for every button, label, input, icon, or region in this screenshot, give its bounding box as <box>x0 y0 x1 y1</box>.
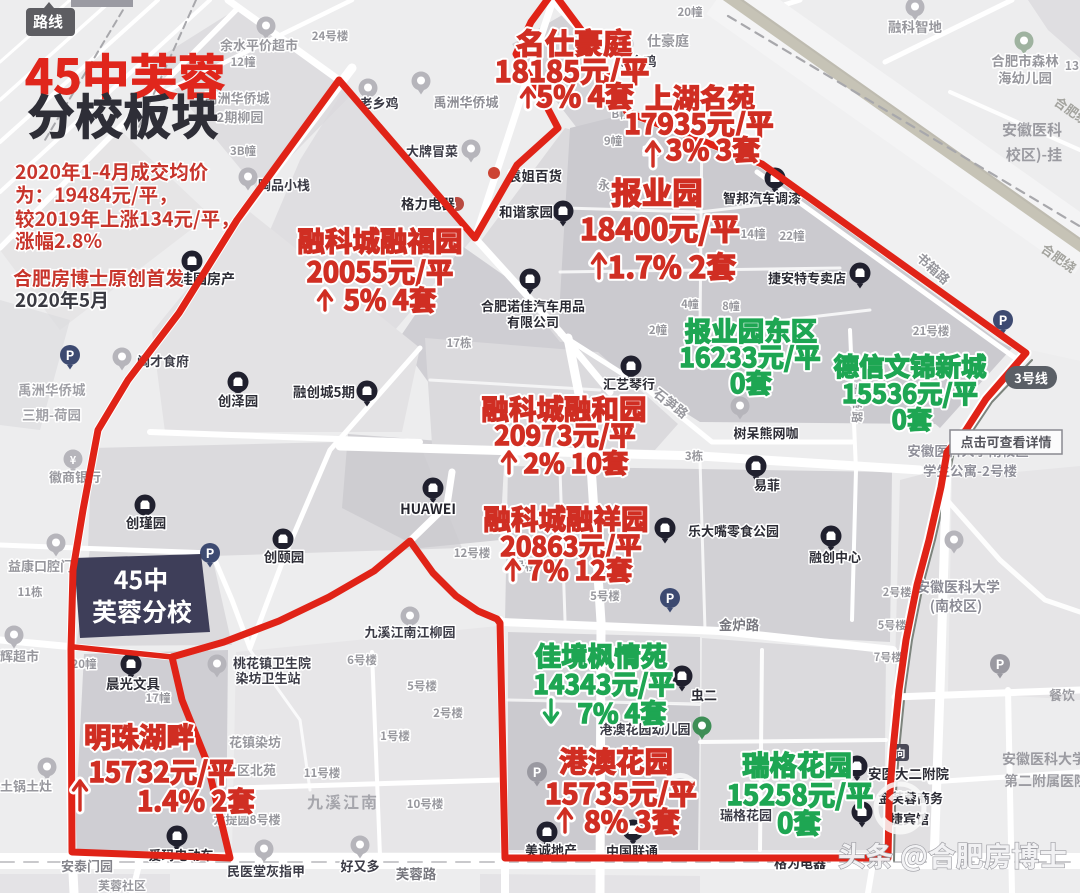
svg-text:染坊卫生站: 染坊卫生站 <box>235 668 300 687</box>
svg-text:虫二: 虫二 <box>691 685 717 704</box>
svg-text:1号楼: 1号楼 <box>380 728 410 744</box>
svg-text:2号楼: 2号楼 <box>433 705 463 721</box>
svg-text:仕豪庭: 仕豪庭 <box>647 31 689 51</box>
svg-text:花镇染坊: 花镇染坊 <box>229 732 281 751</box>
svg-text:头条 @合肥房博士: 头条 @合肥房博士 <box>838 834 1067 874</box>
svg-text:0套: 0套 <box>730 362 772 401</box>
svg-text:6号楼: 6号楼 <box>347 652 377 668</box>
svg-text:2% 10套: 2% 10套 <box>524 442 629 481</box>
svg-text:禹洲华侨城: 禹洲华侨城 <box>433 92 498 111</box>
svg-text:2期柳园: 2期柳园 <box>217 107 264 126</box>
svg-text:P: P <box>206 543 215 562</box>
svg-text:禹洲华侨城: 禹洲华侨城 <box>18 379 86 399</box>
svg-text:17幢: 17幢 <box>145 690 171 706</box>
svg-text:(南校区): (南校区) <box>930 596 983 616</box>
svg-text:7% 12套: 7% 12套 <box>528 549 633 588</box>
svg-text:安徽医科大学: 安徽医科大学 <box>1002 749 1080 769</box>
svg-text:创泽园: 创泽园 <box>218 390 259 410</box>
svg-text:11栋: 11栋 <box>17 584 43 600</box>
svg-text:芙蓉社区: 芙蓉社区 <box>98 877 146 893</box>
svg-text:0套: 0套 <box>777 801 821 841</box>
svg-text:5% 4套: 5% 4套 <box>536 74 634 116</box>
svg-text:芙蓉分校: 芙蓉分校 <box>92 593 192 629</box>
svg-text:路线: 路线 <box>33 11 63 32</box>
svg-text:5号楼: 5号楼 <box>878 617 907 633</box>
svg-text:乐大嘴零食公园: 乐大嘴零食公园 <box>688 521 779 540</box>
svg-text:5号楼: 5号楼 <box>407 678 437 694</box>
svg-text:芙蓉路: 芙蓉路 <box>396 863 437 883</box>
svg-text:P: P <box>996 654 1005 673</box>
svg-text:学生公寓-2号楼: 学生公寓-2号楼 <box>923 460 1017 480</box>
svg-text:2幢: 2幢 <box>649 322 668 338</box>
svg-text:3% 3套: 3% 3套 <box>666 129 760 169</box>
svg-text:5号楼: 5号楼 <box>590 588 620 604</box>
svg-text:P: P <box>66 345 75 364</box>
svg-text:点击可查看详情: 点击可查看详情 <box>960 432 1051 451</box>
svg-text:P: P <box>999 310 1008 329</box>
svg-text:P: P <box>666 588 675 607</box>
svg-text:17栋: 17栋 <box>446 335 472 351</box>
svg-text:安医大二附院: 安医大二附院 <box>868 763 949 783</box>
svg-text:余水平价超市: 余水平价超市 <box>220 35 298 54</box>
svg-text:20幢: 20幢 <box>677 4 703 20</box>
svg-text:海幼儿园: 海幼儿园 <box>998 67 1052 87</box>
svg-text:第二附属医院: 第二附属医院 <box>1004 771 1080 791</box>
svg-text:9幢: 9幢 <box>604 133 623 149</box>
svg-text:2号楼: 2号楼 <box>883 584 912 600</box>
svg-text:易菲: 易菲 <box>754 475 780 494</box>
svg-text:¥: ¥ <box>70 452 77 468</box>
svg-text:餐饮: 餐饮 <box>1049 685 1075 704</box>
svg-text:和谐家园: 和谐家园 <box>499 201 553 221</box>
svg-text:45中: 45中 <box>114 561 169 597</box>
svg-text:三期-荷园: 三期-荷园 <box>22 404 81 424</box>
svg-text:8% 3套: 8% 3套 <box>584 800 680 841</box>
svg-text:3B幢: 3B幢 <box>230 143 257 159</box>
svg-text:5% 4套: 5% 4套 <box>344 278 437 318</box>
svg-text:创颐园: 创颐园 <box>264 546 305 566</box>
svg-text:好又多: 好又多 <box>340 856 379 875</box>
svg-text:20幢: 20幢 <box>71 656 97 672</box>
svg-text:7号楼: 7号楼 <box>874 649 903 665</box>
svg-text:金炉路: 金炉路 <box>719 614 760 634</box>
svg-text:13: 13 <box>1065 57 1079 74</box>
svg-text:10号楼: 10号楼 <box>407 796 444 812</box>
svg-text:安泰门园: 安泰门园 <box>61 856 113 875</box>
svg-text:1.4% 2套: 1.4% 2套 <box>137 779 255 819</box>
svg-text:永: 永 <box>598 176 610 193</box>
svg-text:安徽医科大学: 安徽医科大学 <box>916 577 1000 597</box>
svg-text:创瑾园: 创瑾园 <box>126 512 167 532</box>
svg-text:树呆熊网咖: 树呆熊网咖 <box>733 423 798 442</box>
svg-text:22幢: 22幢 <box>779 228 805 244</box>
svg-text:24号楼: 24号楼 <box>312 28 349 44</box>
svg-text:九溪江南江柳园: 九溪江南江柳园 <box>364 622 455 641</box>
svg-text:P: P <box>533 762 542 781</box>
svg-text:HUAWEI: HUAWEI <box>400 499 456 519</box>
svg-text:3栋: 3栋 <box>685 448 704 464</box>
svg-text:大牌冒菜: 大牌冒菜 <box>406 141 458 160</box>
svg-text:安徽医科: 安徽医科 <box>1002 119 1062 140</box>
svg-text:14幢: 14幢 <box>740 226 766 242</box>
svg-text:12号楼: 12号楼 <box>454 545 491 561</box>
svg-text:11号楼: 11号楼 <box>304 765 341 781</box>
svg-text:辉超市: 辉超市 <box>0 646 39 665</box>
svg-text:1.7% 2套: 1.7% 2套 <box>608 243 737 287</box>
svg-text:融科智地: 融科智地 <box>888 16 942 36</box>
svg-text:涨幅2.8%: 涨幅2.8% <box>15 225 102 254</box>
svg-text:土锅土灶: 土锅土灶 <box>0 776 52 795</box>
svg-text:明珠湖畔: 明珠湖畔 <box>84 715 194 755</box>
svg-text:民医堂灰指甲: 民医堂灰指甲 <box>227 861 305 880</box>
svg-text:0套: 0套 <box>892 400 933 437</box>
svg-text:捷安特专卖店: 捷安特专卖店 <box>768 268 846 287</box>
svg-text:校区)-挂: 校区)-挂 <box>1006 144 1062 165</box>
svg-text:融创中心: 融创中心 <box>809 547 861 566</box>
svg-text:21号楼: 21号楼 <box>913 323 950 339</box>
svg-text:融创城5期: 融创城5期 <box>293 381 355 401</box>
svg-text:7% 4套: 7% 4套 <box>577 692 666 731</box>
svg-text:2020年5月: 2020年5月 <box>15 286 109 313</box>
svg-text:3号线: 3号线 <box>1014 368 1048 387</box>
svg-text:12幢: 12幢 <box>230 54 256 70</box>
svg-text:九溪江南: 九溪江南 <box>307 789 379 813</box>
svg-text:有限公司: 有限公司 <box>507 312 559 331</box>
svg-text:分校板块: 分校板块 <box>27 78 219 148</box>
